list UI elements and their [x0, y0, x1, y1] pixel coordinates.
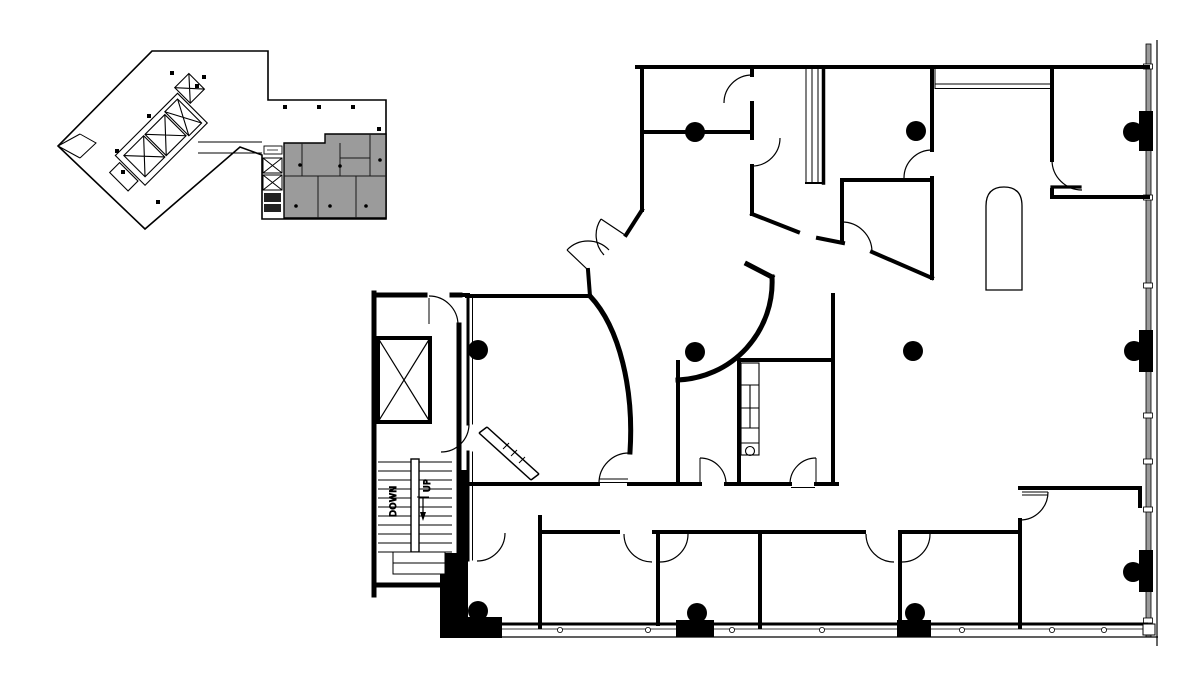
stairs: DOWN UP	[378, 459, 452, 574]
floor-plan-canvas: DOWN UP	[0, 0, 1200, 675]
column-dot	[687, 603, 707, 623]
column-dot	[1123, 122, 1143, 142]
corner-black-wall	[440, 553, 502, 638]
mullion-ticks-bottom	[557, 627, 1106, 632]
key-plan-elevator-stack	[263, 158, 282, 212]
stair-down-label: DOWN	[389, 485, 399, 517]
column-dot	[468, 601, 488, 621]
column-dot	[685, 122, 705, 142]
ramp	[479, 427, 539, 480]
column-dots	[468, 121, 1144, 623]
column-dot	[685, 342, 705, 362]
elevator-shaft	[378, 338, 430, 422]
key-plan-label-box	[264, 146, 282, 154]
stair-stringer	[411, 459, 419, 552]
column-dot	[1124, 341, 1144, 361]
floor-plan-page: DOWN UP	[0, 0, 1200, 675]
walls	[374, 67, 1148, 627]
door-swings	[429, 75, 1082, 562]
column-dot	[906, 121, 926, 141]
column-dot	[905, 603, 925, 623]
pantry-casework	[741, 363, 759, 456]
arched-fixture	[986, 187, 1022, 290]
column-dot	[903, 341, 923, 361]
column-dot	[1123, 562, 1143, 582]
column-dot	[468, 340, 488, 360]
stair-up-label: UP	[423, 479, 433, 492]
curtain-wall-bottom	[440, 470, 1158, 638]
key-plan	[58, 51, 386, 229]
corner-mullion	[1143, 624, 1155, 635]
sink	[746, 447, 755, 456]
key-plan-entry-tip	[58, 134, 96, 158]
